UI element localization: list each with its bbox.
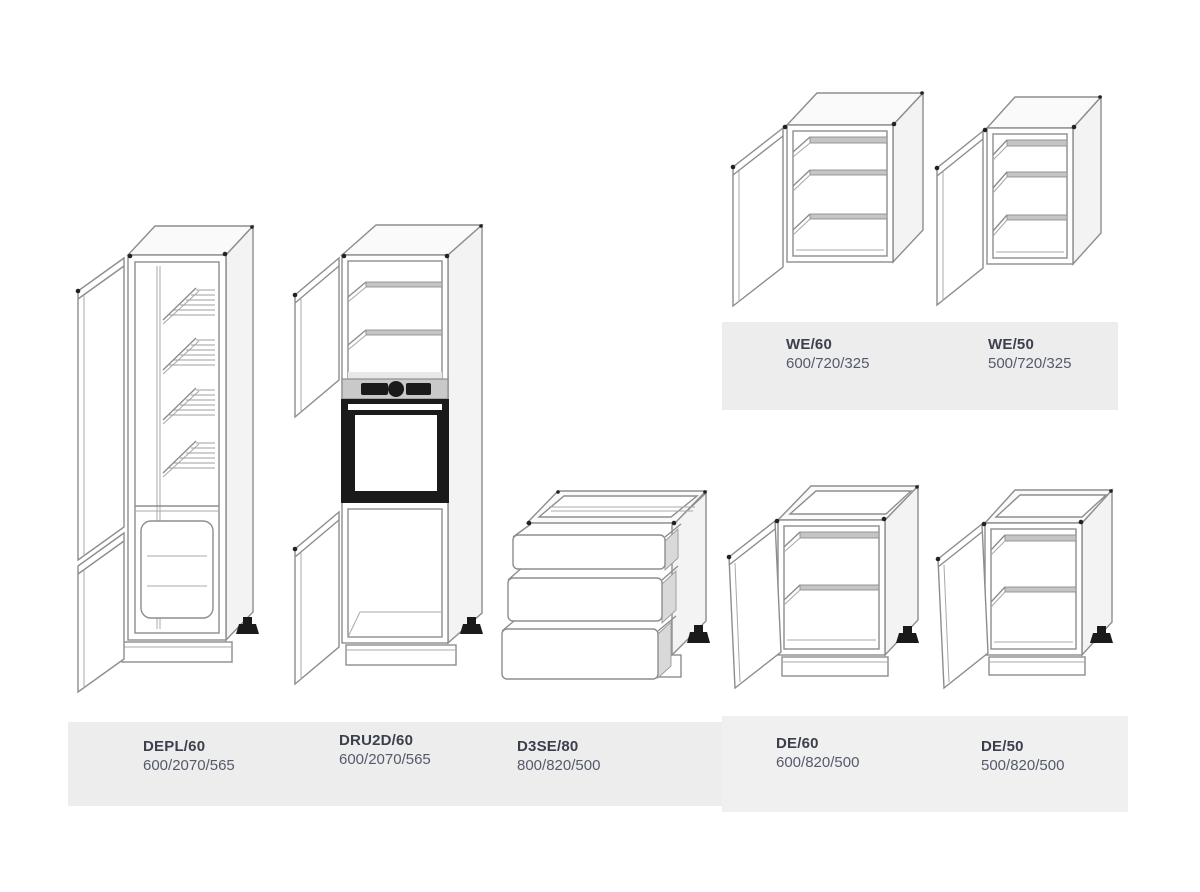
fridge-lower-open-door	[78, 533, 124, 692]
product-code: DRU2D/60	[339, 731, 431, 750]
base-cabinet-de50-open-door	[938, 524, 988, 688]
product-code: WE/60	[786, 335, 869, 354]
wall-cabinet-we60-open-door	[733, 128, 783, 306]
fridge-upper-open-door	[78, 258, 124, 560]
product-dimensions: 600/2070/565	[339, 750, 431, 769]
oven-cabinet-lower-open-door	[295, 512, 339, 684]
oven-cabinet-upper-open-door	[295, 258, 339, 417]
product-label-d3se80: D3SE/80 800/820/500	[517, 737, 600, 775]
plinth	[782, 657, 888, 676]
tall-oven-cabinet-dru2d60-drawing	[293, 224, 483, 684]
product-label-we60: WE/60 600/720/325	[786, 335, 869, 373]
freezer-compartment	[135, 506, 219, 618]
product-label-de60: DE/60 600/820/500	[776, 734, 859, 772]
built-in-oven	[341, 379, 449, 503]
top-drawer-front	[513, 535, 665, 569]
base-cabinet-de60-open-door	[729, 521, 781, 688]
product-label-we50: WE/50 500/720/325	[988, 335, 1071, 373]
product-dimensions: 800/820/500	[517, 756, 600, 775]
drawer-base-cabinet-d3se80-drawing	[502, 490, 710, 679]
oven-window	[355, 415, 437, 491]
product-code: DEPL/60	[143, 737, 235, 756]
tall-fridge-cabinet-depl60-drawing	[76, 225, 259, 692]
product-dimensions: 600/2070/565	[143, 756, 235, 775]
wall-cabinet-we60-drawing	[731, 91, 924, 306]
product-label-de50: DE/50 500/820/500	[981, 737, 1064, 775]
wall-cabinet-we50-open-door	[937, 131, 983, 305]
product-code: D3SE/80	[517, 737, 600, 756]
base-cabinet-de50-drawing	[936, 489, 1113, 688]
oven-knob	[388, 381, 404, 397]
oven-display	[361, 383, 388, 395]
wall-cabinet-we50-drawing	[935, 95, 1102, 305]
product-code: DE/60	[776, 734, 859, 753]
product-code: WE/50	[988, 335, 1071, 354]
base-cabinet-de60-drawing	[727, 485, 919, 688]
catalog-page: WE/60 600/720/325 WE/50 500/720/325 DEPL…	[0, 0, 1200, 892]
product-dimensions: 600/720/325	[786, 354, 869, 373]
product-label-depl60: DEPL/60 600/2070/565	[143, 737, 235, 775]
plinth	[989, 657, 1085, 675]
product-dimensions: 500/820/500	[981, 756, 1064, 775]
product-dimensions: 500/720/325	[988, 354, 1071, 373]
product-label-dru2d60: DRU2D/60 600/2070/565	[339, 731, 431, 769]
oven-handle	[348, 404, 442, 410]
plinth	[122, 642, 232, 662]
plinth	[346, 645, 456, 665]
bottom-drawer-front	[502, 629, 658, 679]
product-code: DE/50	[981, 737, 1064, 756]
product-dimensions: 600/820/500	[776, 753, 859, 772]
middle-drawer-front	[508, 578, 662, 621]
